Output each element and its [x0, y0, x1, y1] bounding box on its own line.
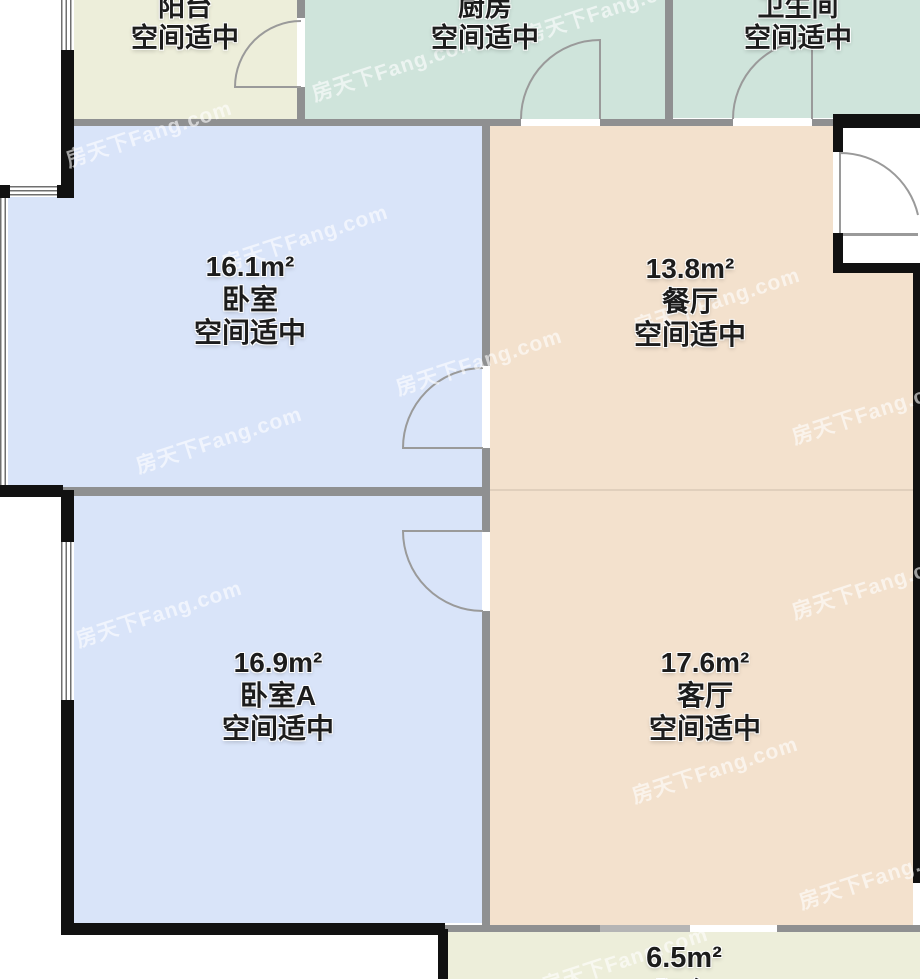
label-kitchen: 厨房 空间适中 [431, 0, 539, 54]
room-status: 空间适中 [634, 318, 746, 351]
entry-alcove-lower [843, 236, 920, 263]
bedroom-door-gap [482, 366, 490, 448]
wall-kitchen-bathroom [665, 0, 673, 119]
room-area: 6.5m² [646, 940, 722, 976]
floorplan-canvas: 房天下Fang.com 房天下Fang.com 房天下Fang.com 房天下F… [0, 0, 920, 979]
room-area: 16.9m² [222, 646, 334, 679]
dining-living-divider [490, 489, 913, 491]
wall-bedroom-a-left-lower [61, 700, 74, 935]
room-area: 16.1m² [194, 250, 306, 283]
balcony-door-gap [297, 18, 305, 87]
room-living [488, 273, 913, 925]
balcony-left-window [61, 0, 74, 50]
room-dining [488, 125, 833, 273]
room-name: 卧室 [194, 283, 306, 316]
bedroom-left-long-window [0, 198, 8, 485]
wall-balcony-bottom-left [438, 929, 448, 979]
label-living: 17.6m² 客厅 空间适中 [649, 646, 761, 745]
label-balcony-bottom: 6.5m² 阳台 [646, 940, 722, 979]
room-status: 空间适中 [222, 712, 334, 745]
kitchen-door-gap [521, 119, 600, 126]
room-status: 空间适中 [131, 23, 239, 54]
bedroom-a-left-window [61, 542, 74, 700]
room-name: 卫生间 [744, 0, 852, 23]
room-area: 17.6m² [649, 646, 761, 679]
room-status: 空间适中 [744, 23, 852, 54]
wall-left-mid-horizontal [0, 485, 63, 497]
label-dining: 13.8m² 餐厅 空间适中 [634, 252, 746, 351]
entry-alcove [843, 128, 920, 233]
wall-bedroom-a-left-upper [61, 490, 74, 542]
wall-left-upper [61, 50, 74, 187]
wall-between-bedrooms [62, 487, 482, 496]
wall-top-horizontal [74, 119, 837, 126]
sliding-door-panel [600, 925, 690, 932]
room-status: 空间适中 [649, 712, 761, 745]
room-status: 空间适中 [431, 23, 539, 54]
room-name: 客厅 [649, 679, 761, 712]
room-name: 餐厅 [634, 285, 746, 318]
bedroom-a-door-gap [482, 532, 490, 611]
label-bedroom-a: 16.9m² 卧室A 空间适中 [222, 646, 334, 745]
label-bathroom: 卫生间 空间适中 [744, 0, 852, 54]
room-name: 卧室A [222, 679, 334, 712]
entry-door-opening [833, 152, 843, 233]
room-bedroom-extension [8, 197, 78, 487]
bathroom-door-gap [733, 119, 812, 126]
wall-left-window-cap [0, 185, 10, 198]
room-name: 厨房 [431, 0, 539, 23]
room-area: 13.8m² [634, 252, 746, 285]
sliding-door-gap [690, 925, 777, 932]
entry-jamb-top [833, 114, 843, 152]
room-status: 空间适中 [194, 316, 306, 349]
wall-left-window-corner [57, 185, 74, 198]
bedroom-left-small-window [10, 186, 57, 197]
wall-right-vertical [913, 273, 920, 883]
wall-center-vertical [482, 119, 490, 925]
wall-top-right [833, 114, 920, 128]
room-name: 阳台 [131, 0, 239, 23]
label-balcony-top: 阳台 空间适中 [131, 0, 239, 54]
wall-alcove-bottom [833, 263, 920, 273]
label-bedroom: 16.1m² 卧室 空间适中 [194, 250, 306, 349]
wall-bedroom-a-bottom [61, 923, 445, 935]
